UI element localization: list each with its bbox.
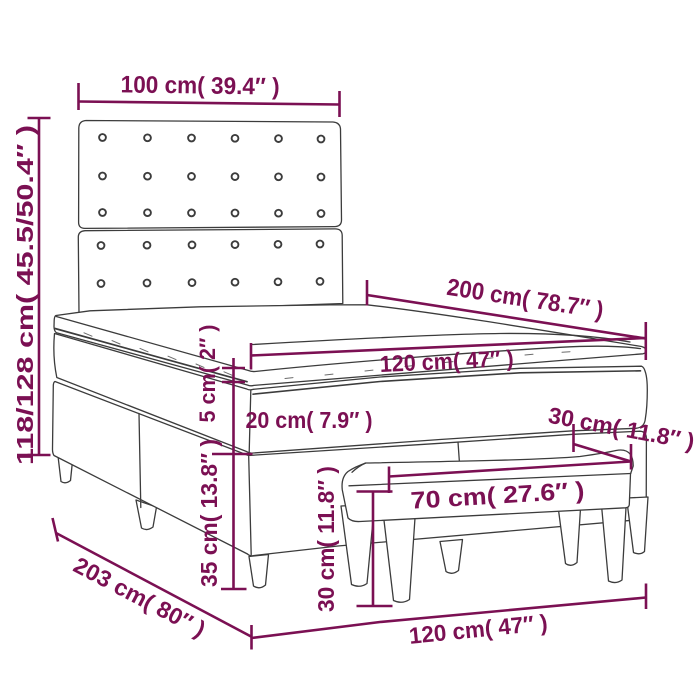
svg-text:100 cm( 39.4″ ): 100 cm( 39.4″ ): [120, 71, 279, 100]
svg-text:20 cm( 7.9″ ): 20 cm( 7.9″ ): [246, 407, 373, 433]
svg-text:35 cm( 13.8″ ): 35 cm( 13.8″ ): [196, 439, 222, 587]
svg-text:30 cm( 11.8″ ): 30 cm( 11.8″ ): [313, 466, 339, 612]
svg-text:5 cm( 2″ ): 5 cm( 2″ ): [195, 325, 220, 423]
svg-text:118/128 cm( 45.5/50.4″ ): 118/128 cm( 45.5/50.4″ ): [12, 125, 38, 465]
